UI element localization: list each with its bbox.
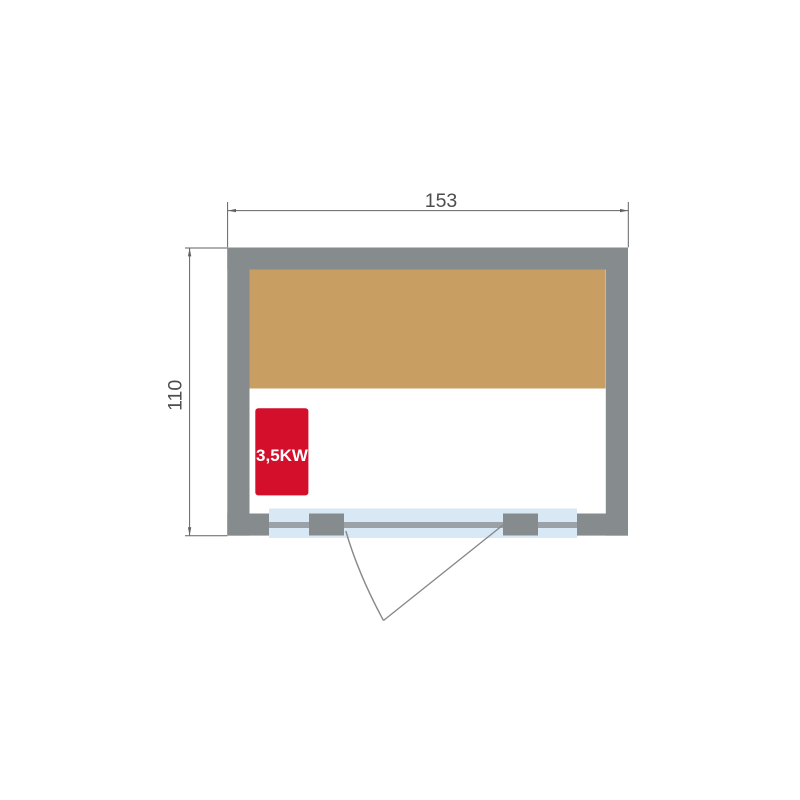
svg-text:153: 153 xyxy=(425,190,458,212)
svg-text:110: 110 xyxy=(164,380,186,411)
svg-text:3,5KW: 3,5KW xyxy=(256,446,309,465)
